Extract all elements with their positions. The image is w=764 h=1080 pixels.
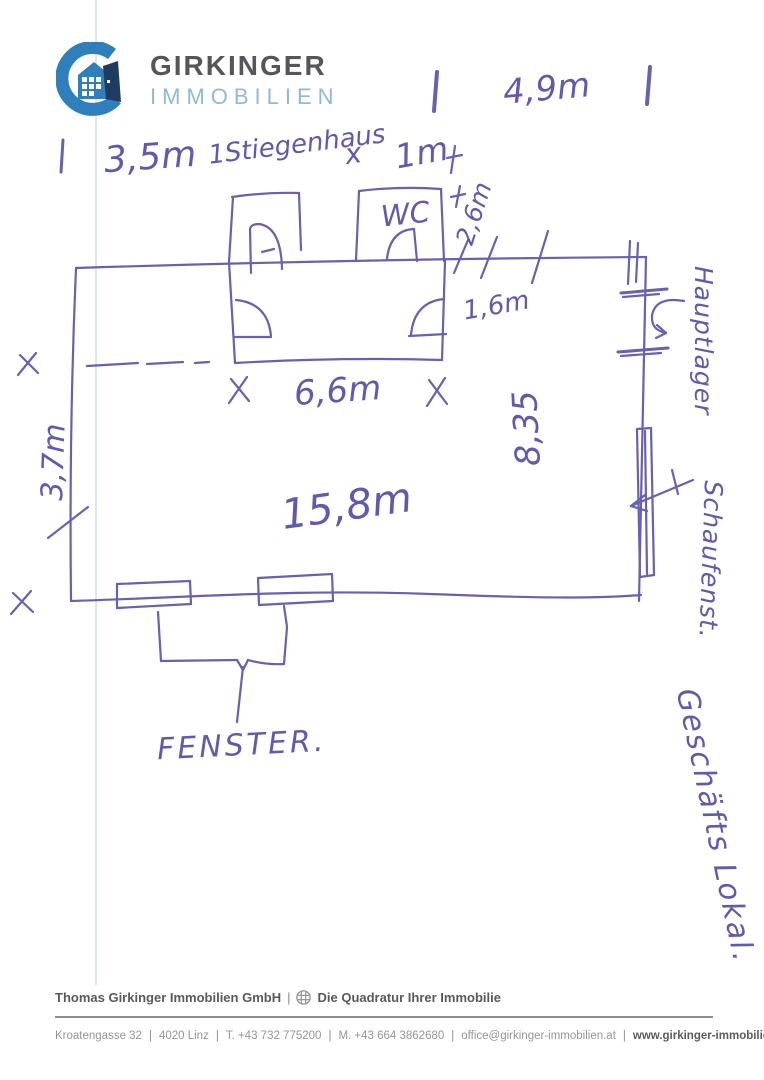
footer-separator: | [287, 990, 290, 1005]
multiply-mark: x [343, 139, 363, 169]
door-swing-arcs [234, 224, 446, 337]
scanned-floorplan-page: GIRKINGER IMMOBILIEN [0, 0, 764, 1080]
footer-mobile: M. +43 664 3862680 [338, 1030, 444, 1042]
footer-separator: | [149, 1030, 152, 1042]
dim-3-7m: 3,7m [38, 423, 71, 501]
footer-company: Thomas Girkinger Immobilien GmbH [55, 990, 281, 1005]
entrance-arrow [652, 300, 684, 338]
footer-separator: | [216, 1030, 219, 1042]
footer-separator: | [623, 1030, 626, 1042]
footer-phone: T. +43 732 775200 [226, 1030, 322, 1042]
dim-top-4-9m: 4,9m [502, 68, 592, 109]
schaufenster-label: Schaufenst. [695, 480, 726, 639]
quadratur-grid-icon [296, 990, 311, 1005]
dim-8-35: 8,35 [508, 390, 546, 467]
footer-tagline: Die Quadratur Ihrer Immobilie [317, 990, 501, 1005]
dim-1m: 1m [393, 132, 451, 174]
footer-website: www.girkinger-immobilien.at [633, 1030, 764, 1042]
footer-divider [55, 1016, 713, 1018]
footer-company-line: Thomas Girkinger Immobilien GmbH | Die Q… [55, 990, 715, 1005]
wc-label: WC [380, 198, 432, 232]
footer-separator: | [328, 1030, 331, 1042]
dim-6-6m: 6,6m [293, 371, 382, 411]
footer-city: 4020 Linz [159, 1030, 209, 1042]
main-room-walls [71, 257, 646, 601]
dim-3-5m: 3,5m [103, 137, 198, 179]
hauptlager-label: Hauptlager [691, 266, 716, 415]
bottom-windows [117, 574, 333, 608]
footer-address: Kroatengasse 32 [55, 1030, 142, 1042]
footer-separator: | [451, 1030, 454, 1042]
footer-contact-line: Kroatengasse 32 | 4020 Linz | T. +43 732… [55, 1030, 735, 1042]
fenster-label: FENSTER. [156, 727, 327, 766]
footer-email: office@girkinger-immobilien.at [461, 1030, 616, 1042]
fenster-bracket [158, 606, 287, 722]
